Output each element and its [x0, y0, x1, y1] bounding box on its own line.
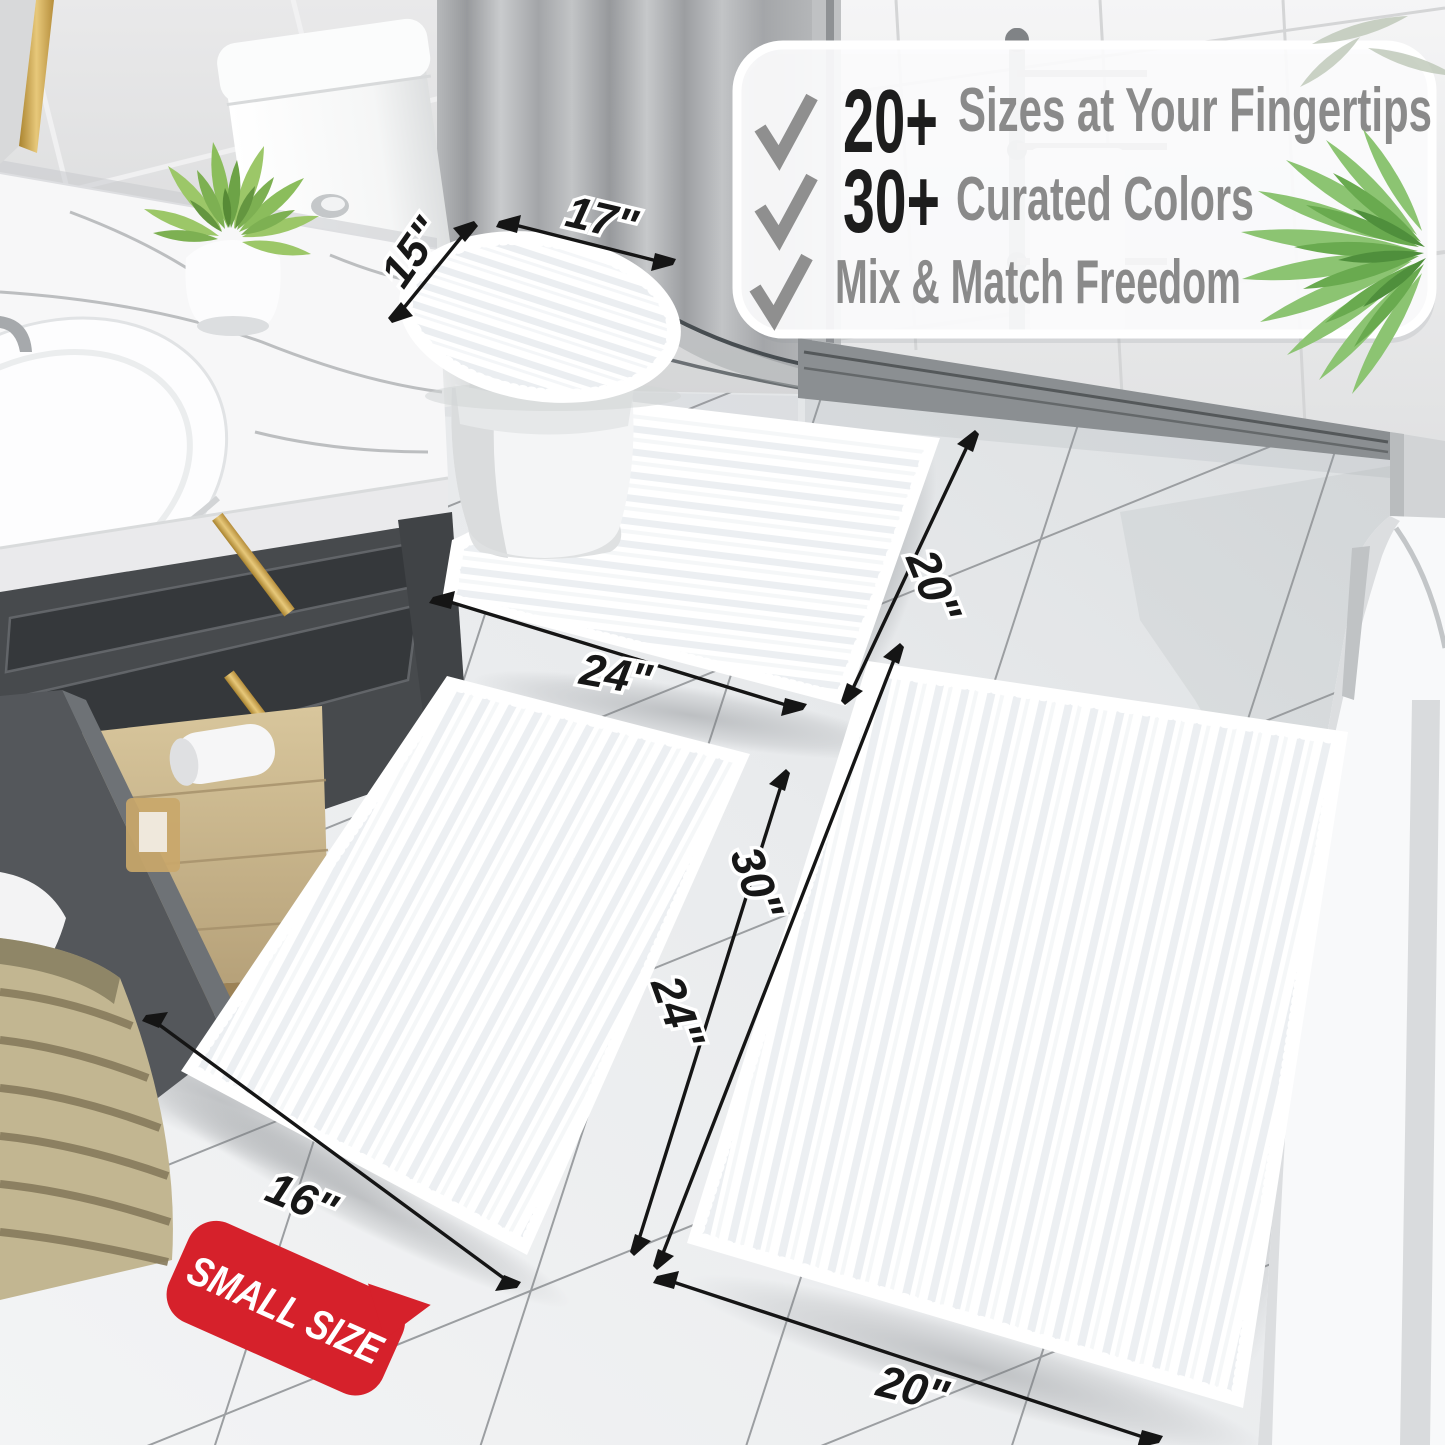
svg-text:Sizes at Your Fingertips: Sizes at Your Fingertips — [958, 76, 1432, 145]
svg-text:Curated Colors: Curated Colors — [956, 165, 1254, 234]
svg-text:30+: 30+ — [843, 152, 940, 252]
svg-text:Mix & Match Freedom: Mix & Match Freedom — [835, 248, 1241, 317]
